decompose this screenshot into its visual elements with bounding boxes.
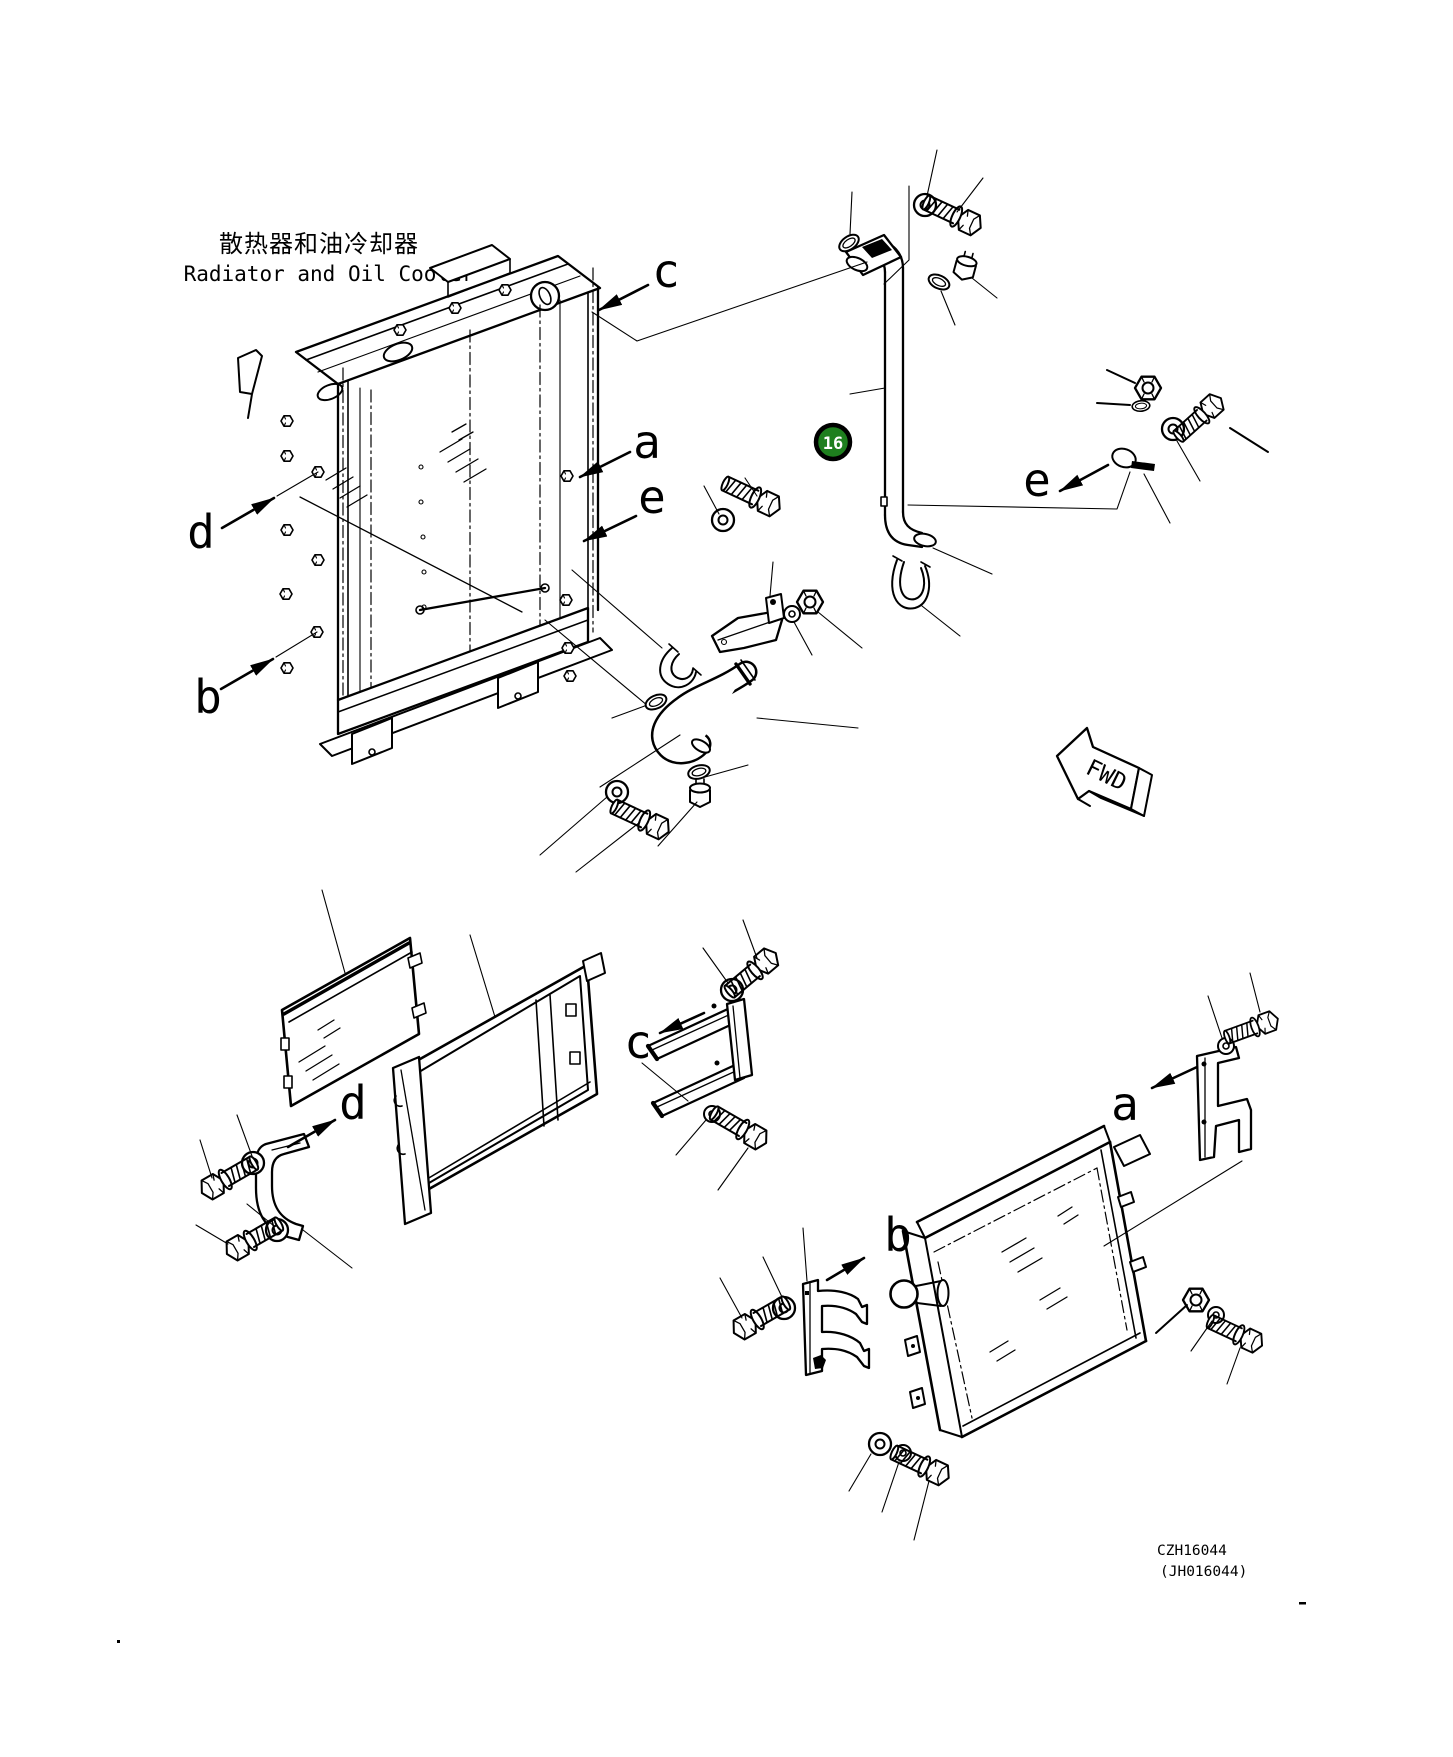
o-ring	[926, 271, 951, 292]
hex-nut	[1135, 377, 1161, 400]
part-balloon-16[interactable]: 16	[816, 425, 850, 459]
callout-b-lower: b	[827, 1208, 912, 1280]
callout-e-upper-left: e	[584, 470, 666, 541]
callout-letter: c	[624, 1015, 652, 1069]
callout-letter: e	[1023, 453, 1051, 507]
callout-c-upper: c	[599, 244, 680, 310]
bracket-c-drawing	[642, 920, 783, 1190]
callout-letter: e	[638, 470, 666, 524]
callout-letter: b	[194, 670, 222, 724]
callout-letter: d	[339, 1076, 367, 1130]
callout-letter: c	[652, 244, 680, 298]
drawing-code-secondary: (JH016044)	[1160, 1564, 1247, 1580]
hex-nut	[1183, 1289, 1209, 1312]
dot-artifact	[117, 1640, 120, 1643]
cooler-mount-hardware-bottom	[849, 1433, 953, 1540]
hex-bolt	[706, 1102, 771, 1152]
hex-nut	[797, 591, 823, 614]
hex-bolt	[1170, 390, 1228, 445]
hex-bolt	[721, 945, 783, 1002]
small-washer	[784, 606, 800, 622]
callout-letter: a	[633, 415, 661, 469]
hex-bolt	[1204, 1311, 1267, 1355]
callout-letter: b	[884, 1208, 912, 1262]
hex-bolt	[887, 1442, 953, 1488]
drawing-code: CZH16044 (JH016044)	[117, 1543, 1306, 1643]
parts-diagram-page: 散热器和油冷却器 Radiator and Oil Cooler	[0, 0, 1453, 1757]
dot-artifact	[1299, 1602, 1306, 1605]
fwd-arrow-icon: FWD	[1057, 728, 1152, 816]
page-title-chinese: 散热器和油冷却器	[219, 230, 419, 258]
callout-letter: d	[187, 505, 215, 559]
hex-bolt	[607, 796, 673, 842]
cooler-mount-hardware-right	[1156, 1289, 1266, 1384]
callout-b-upper: b	[194, 659, 273, 724]
hex-bolt	[1222, 1009, 1282, 1047]
bracket-d-drawing	[196, 1115, 352, 1268]
flat-washer	[1132, 400, 1150, 412]
callout-e-upper-right: e	[1023, 453, 1108, 507]
parts-diagram-canvas: 散热器和油冷却器 Radiator and Oil Cooler	[0, 0, 1453, 1757]
callout-d-upper: d	[187, 498, 274, 559]
hex-plug	[952, 250, 979, 282]
drawing-code-primary: CZH16044	[1157, 1543, 1227, 1559]
hex-plug	[690, 779, 710, 807]
oil-cooler-drawing	[891, 1126, 1243, 1437]
callout-a-lower: a	[1111, 1067, 1197, 1131]
radiator-assembly-drawing	[238, 245, 612, 764]
bracket-b-drawing	[720, 1228, 869, 1375]
callout-a-upper: a	[580, 415, 661, 477]
page-title-english: Radiator and Oil Cooler	[184, 262, 475, 286]
oval-plug	[687, 763, 712, 781]
tube-clamp-hardware-right	[908, 370, 1268, 523]
shroud-frame-drawing	[393, 935, 605, 1224]
tube-top-hardware	[836, 150, 997, 325]
balloon-number: 16	[823, 434, 843, 454]
callout-letter: a	[1111, 1077, 1139, 1131]
plain-washer	[712, 509, 734, 531]
bracket-a-drawing	[1197, 973, 1281, 1160]
plain-washer	[869, 1433, 891, 1455]
